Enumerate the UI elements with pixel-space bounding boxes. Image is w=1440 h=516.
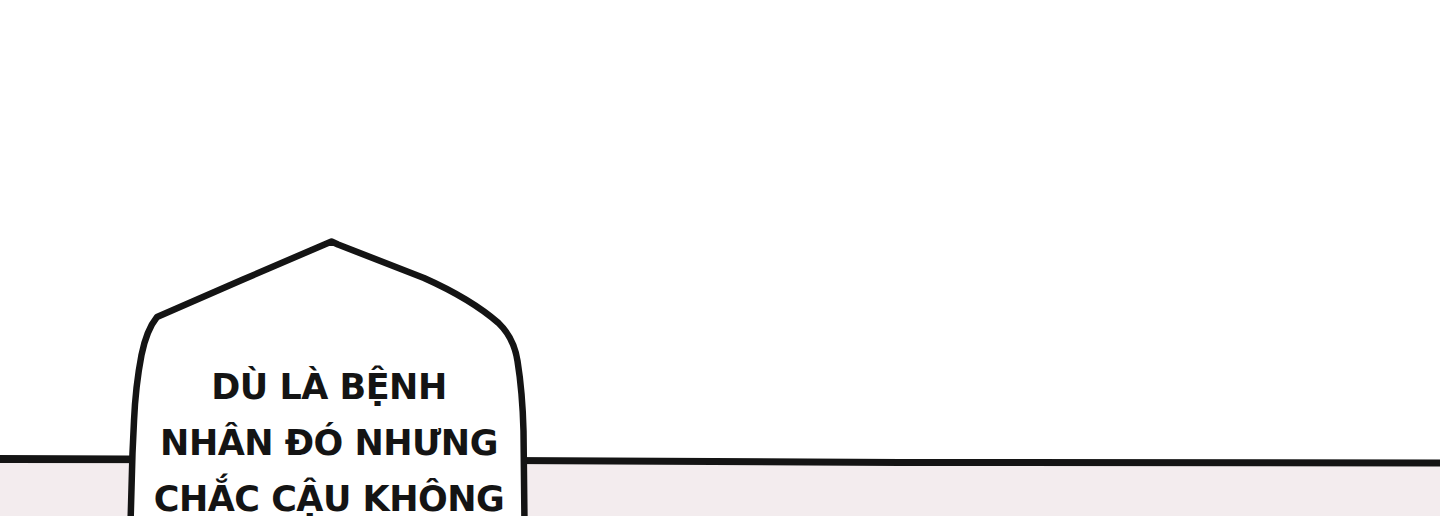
speech-bubble-line-3: CHẮC CẬU KHÔNG xyxy=(133,471,525,516)
speech-bubble-line-2: NHÂN ĐÓ NHƯNG xyxy=(133,415,525,471)
speech-bubble-line-1: DÙ LÀ BỆNH xyxy=(133,359,525,415)
speech-bubble-text: DÙ LÀ BỆNH NHÂN ĐÓ NHƯNG CHẮC CẬU KHÔNG xyxy=(133,359,525,516)
comic-page: DÙ LÀ BỆNH NHÂN ĐÓ NHƯNG CHẮC CẬU KHÔNG xyxy=(0,0,1440,516)
